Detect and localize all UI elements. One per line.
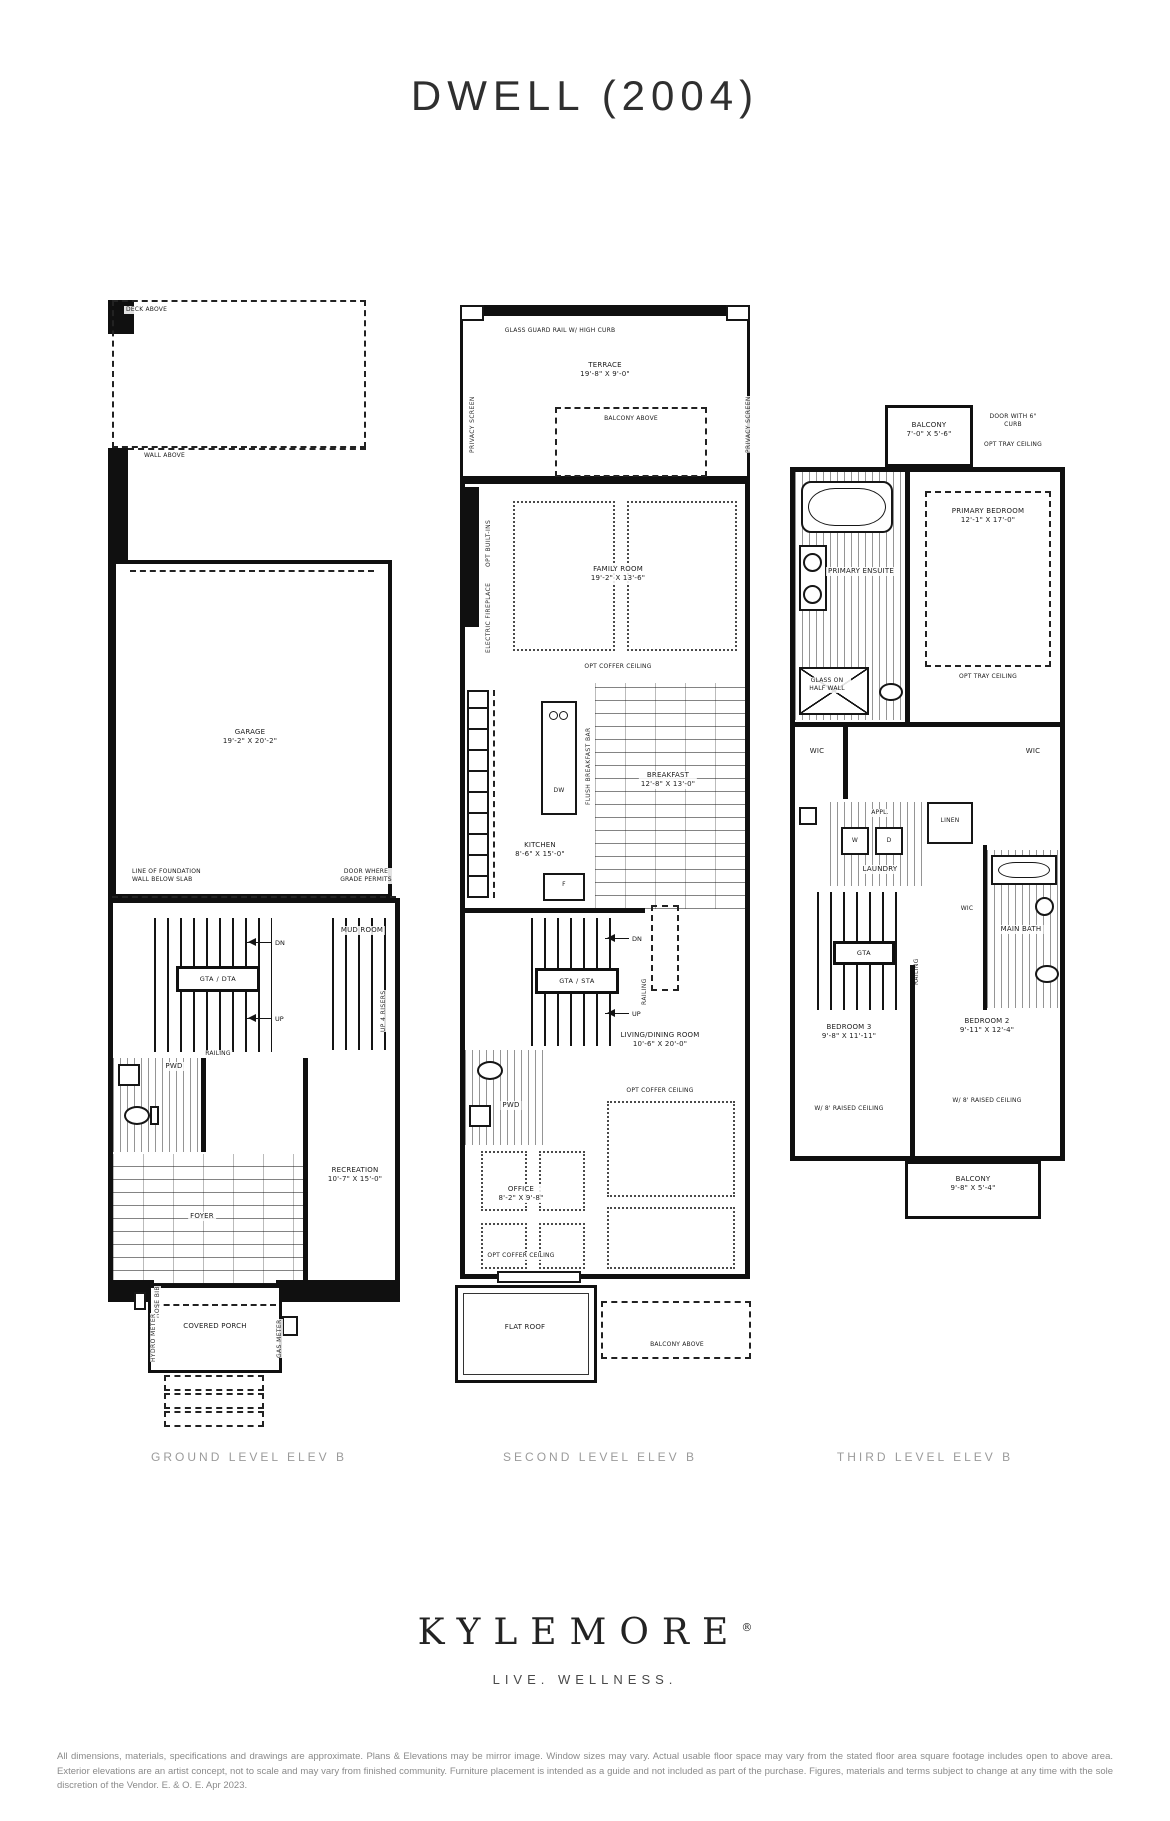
privacy-screen-label: PRIVACY SCREEN (745, 396, 752, 453)
laundry-sink (799, 807, 817, 825)
wic-label: WIC (808, 747, 826, 756)
wall-segment (276, 1280, 400, 1302)
flush-bar-label: FLUSH BREAKFAST BAR (585, 727, 592, 805)
balcony-top-label: BALCONY 7'-0" X 5'-6" (905, 421, 954, 439)
stair-run-label: GTA / STA (535, 968, 619, 994)
toilet-fixture (879, 683, 903, 701)
glass-half-wall-note: GLASS ON HALF WALL (803, 677, 851, 693)
opt-coffer-label: OPT COFFER CEILING (624, 1087, 695, 1095)
up-arrow: UP (246, 1018, 272, 1019)
sink-fixture (118, 1064, 140, 1086)
hydro-meter-label: HYDRO METER (150, 1313, 157, 1362)
legal-disclaimer: All dimensions, materials, specification… (57, 1750, 1113, 1794)
stair-run-label: GTA (833, 941, 895, 965)
railing-label: RAILING (203, 1050, 232, 1058)
terrace-post (726, 305, 750, 321)
bedroom2-label: BEDROOM 2 9'-11" X 12'-4" (958, 1017, 1016, 1035)
wall-above-line (128, 448, 366, 450)
open-to-below-outline (651, 905, 679, 991)
wall-segment (910, 965, 915, 1161)
powder-room-floor (465, 1050, 545, 1145)
appliance-note: APPL. (869, 809, 891, 817)
opt-coffer-label: OPT COFFER CEILING (485, 1252, 556, 1260)
tub-basin (998, 862, 1050, 878)
glass-guard-note: GLASS GUARD RAIL W/ HIGH CURB (503, 327, 618, 335)
caption-second-level: SECOND LEVEL ELEV B (503, 1450, 697, 1464)
toilet-fixture (124, 1106, 150, 1125)
coffer-ceiling-outline (539, 1151, 585, 1211)
coffer-ceiling-outline (481, 1223, 527, 1269)
deck-above-outline (112, 300, 366, 448)
sink-fixture (803, 553, 822, 572)
up-arrow: UP (605, 1013, 629, 1014)
balcony-above-outline (601, 1301, 751, 1359)
plan-third-level: BALCONY 7'-0" X 5'-6" DOOR WITH 6" CURB … (785, 405, 1070, 1220)
foyer-label: FOYER (188, 1212, 216, 1221)
opt-builtins-label: OPT BUILT-INS (485, 520, 492, 567)
caption-third-level: THIRD LEVEL ELEV B (837, 1450, 1013, 1464)
balcony-above-label: BALCONY ABOVE (602, 415, 660, 423)
down-arrow: DN (246, 942, 272, 943)
floorplan-sheet: DWELL (2004) DECK ABOVE WALL ABOVE GARAG… (0, 0, 1170, 1821)
wall-segment (201, 1058, 206, 1152)
opt-coffer-label: OPT COFFER CEILING (582, 663, 653, 671)
raised-ceiling-note: W/ 8' RAISED CEILING (950, 1097, 1023, 1105)
porch-step (164, 1411, 264, 1427)
sink-fixture (469, 1105, 491, 1127)
coffer-ceiling-outline (607, 1101, 735, 1197)
living-dining-label: LIVING/DINING ROOM 10'-6" X 20'-0" (618, 1031, 701, 1049)
island-sink (549, 711, 558, 720)
wall-segment (843, 727, 848, 799)
porch-roof-line (154, 1304, 276, 1306)
coffer-ceiling-outline (607, 1207, 735, 1269)
family-room-label: FAMILY ROOM 19'-2" X 13'-6" (589, 565, 647, 583)
wall-above-label: WALL ABOVE (142, 452, 187, 460)
breakfast-tile-floor (595, 683, 745, 909)
washer-label: W (850, 837, 860, 845)
balcony-bottom-label: BALCONY 9'-8" X 5'-4" (949, 1175, 998, 1193)
toilet-fixture (1035, 965, 1059, 983)
door-grade-note: DOOR WHERE GRADE PERMITS (336, 868, 396, 884)
brand-tagline: LIVE. WELLNESS. (493, 1672, 678, 1687)
tub-fixture (801, 481, 893, 533)
covered-porch-label: COVERED PORCH (181, 1322, 248, 1331)
tub-fixture (991, 855, 1057, 885)
breakfast-label: BREAKFAST 12'-8" X 13'-0" (639, 771, 697, 789)
stair-run-label: GTA / DTA (176, 966, 260, 992)
laundry-label: LAUNDRY (861, 865, 900, 874)
gas-meter-label: GAS METER (276, 1319, 283, 1358)
sink-fixture (803, 585, 822, 604)
deck-above-label: DECK ABOVE (124, 306, 169, 314)
kitchen-cabinets (467, 690, 489, 898)
wall-segment (905, 467, 910, 722)
bedroom3-label: BEDROOM 3 9'-8" X 11'-11" (820, 1023, 878, 1041)
plan-ground-level: DECK ABOVE WALL ABOVE GARAGE 19'-2" X 20… (108, 300, 400, 1432)
balcony-above-label: BALCONY ABOVE (648, 1341, 706, 1349)
privacy-screen-label: PRIVACY SCREEN (469, 396, 476, 453)
tub-basin (808, 488, 886, 526)
toilet-fixture (477, 1061, 503, 1080)
primary-ensuite-label: PRIMARY ENSUITE (826, 567, 896, 576)
wall-segment (460, 908, 645, 913)
recreation-label: RECREATION 10'-7" X 15'-0" (326, 1166, 384, 1184)
porch-step (164, 1375, 264, 1391)
meter-box (282, 1316, 298, 1336)
door-curb-note: DOOR WITH 6" CURB (982, 413, 1044, 429)
toilet-tank (150, 1106, 159, 1125)
terrace-label: TERRACE 19'-8" X 9'-0" (578, 361, 632, 379)
plan-second-level: GLASS GUARD RAIL W/ HIGH CURB TERRACE 19… (455, 305, 755, 1385)
foundation-note: LINE OF FOUNDATION WALL BELOW SLAB (130, 868, 212, 884)
wall-segment (790, 722, 1065, 727)
railing-label: RAILING (641, 978, 648, 1005)
flat-roof-label: FLAT ROOF (503, 1323, 548, 1332)
mudroom-label: MUD ROOM (339, 926, 385, 935)
sink-fixture (1035, 897, 1054, 916)
flat-roof-inner (463, 1293, 589, 1375)
pantry-line (493, 690, 495, 898)
wic-label: WIC (959, 905, 976, 913)
window-bay (497, 1271, 581, 1283)
garage-door-line (130, 570, 374, 572)
island-sink (559, 711, 568, 720)
dryer-label: D (885, 837, 894, 845)
wall-segment (303, 1058, 308, 1284)
linen-label: LINEN (939, 817, 962, 825)
terrace-top-rail (460, 305, 750, 316)
electric-fireplace-label: ELECTRIC FIREPLACE (485, 583, 492, 653)
wic-label: WIC (1024, 747, 1042, 756)
primary-bedroom-label: PRIMARY BEDROOM 12'-1" X 17'-0" (950, 507, 1026, 525)
fireplace-wall (465, 487, 479, 627)
page-title: DWELL (2004) (411, 72, 759, 120)
coffer-ceiling-outline (539, 1223, 585, 1269)
opt-tray-note: OPT TRAY CEILING (957, 673, 1019, 681)
terrace-post (460, 305, 484, 321)
powder-room-label: PWD (500, 1101, 521, 1110)
registered-mark: ® (741, 1621, 752, 1634)
office-label: OFFICE 8'-2" X 9'-8" (497, 1185, 546, 1203)
caption-ground-level: GROUND LEVEL ELEV B (151, 1450, 347, 1464)
garage-label: GARAGE 19'-2" X 20'-2" (221, 728, 279, 746)
meter-box (134, 1292, 146, 1310)
kitchen-label: KITCHEN 8'-6" X 15'-0" (513, 841, 567, 859)
main-bath-label: MAIN BATH (999, 925, 1044, 934)
opt-tray-note: OPT TRAY CEILING (982, 441, 1044, 449)
raised-ceiling-note: W/ 8' RAISED CEILING (812, 1105, 885, 1113)
porch-step (164, 1393, 264, 1409)
dishwasher-label: DW (552, 787, 567, 795)
up-risers-label: UP 4 RISERS (380, 990, 387, 1032)
fridge-label: F (560, 881, 568, 889)
down-arrow: DN (605, 938, 629, 939)
kylemore-logo: KYLEMORE® (418, 1612, 753, 1653)
powder-room-label: PWD (163, 1062, 184, 1071)
